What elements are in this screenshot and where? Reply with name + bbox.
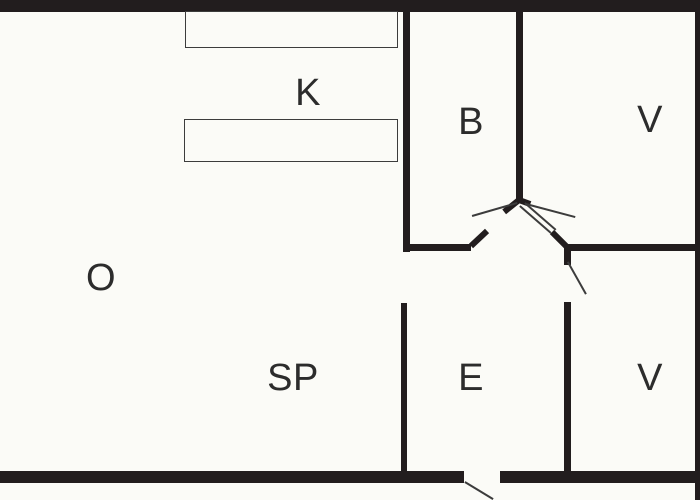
wall-b-bottom [403,244,471,251]
door-swing-entrance [465,481,494,499]
wall-o-b-divider [403,11,410,252]
room-label-o: O [86,259,116,297]
room-label-b: B [458,103,484,141]
floor-plan: KBVOSPEV [0,0,700,500]
wall-e-v-lower [564,302,571,471]
room-label-sp: SP [267,359,319,397]
wall-sp-e-divider [401,303,407,471]
wall-v-v-divider [564,244,700,251]
wall-bottom-left [0,471,464,483]
door-swing-e-v [567,262,586,295]
wall-bottom-right [500,471,700,483]
kitchen-counter-lower [184,119,398,162]
door-leaf-v [550,230,570,250]
room-label-e: E [458,359,484,397]
kitchen-counter-upper [185,11,398,48]
room-label-v1: V [637,101,663,139]
wall-b-v-divider [516,11,523,202]
room-label-v2: V [637,359,663,397]
room-label-k: K [295,74,321,112]
door-leaf-b [469,229,489,248]
